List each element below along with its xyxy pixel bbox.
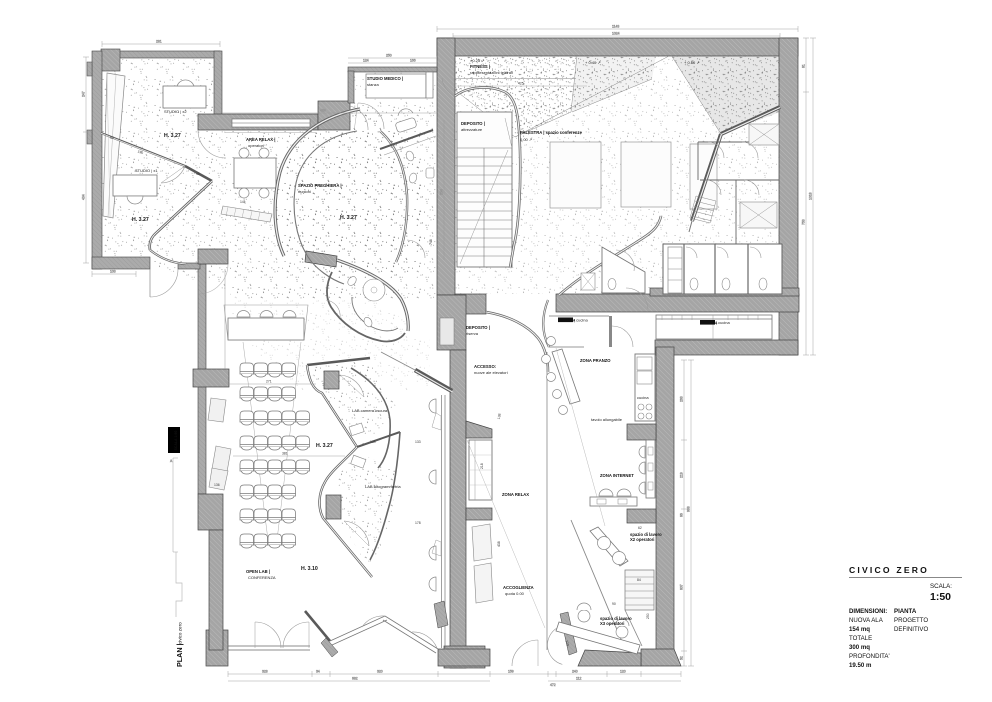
svg-text:stanza: stanza xyxy=(367,82,380,87)
svg-text:120: 120 xyxy=(620,670,626,674)
svg-text:81: 81 xyxy=(802,64,806,68)
svg-text:247: 247 xyxy=(82,91,86,97)
svg-text:FITNESS |: FITNESS | xyxy=(470,64,490,69)
svg-text:ZONA RELAX: ZONA RELAX xyxy=(502,492,529,497)
svg-text:133: 133 xyxy=(415,440,421,444)
svg-text:SPAZIO PREGHIERA |: SPAZIO PREGHIERA | xyxy=(298,183,342,188)
svg-text:DEFINITIVO: DEFINITIVO xyxy=(894,626,928,633)
svg-text:141: 141 xyxy=(240,200,246,204)
svg-text:quota 0.00: quota 0.00 xyxy=(505,591,525,596)
svg-text:OPEN LAB |: OPEN LAB | xyxy=(246,569,270,574)
svg-text:425: 425 xyxy=(518,82,524,86)
svg-text:472: 472 xyxy=(550,683,556,687)
svg-text:381: 381 xyxy=(282,452,288,456)
svg-text:159: 159 xyxy=(508,670,514,674)
svg-text:139: 139 xyxy=(370,440,376,444)
svg-text:attrezzature: attrezzature xyxy=(461,127,483,132)
svg-text:66: 66 xyxy=(680,513,684,517)
svg-text:52: 52 xyxy=(680,656,684,660)
svg-text:250: 250 xyxy=(386,54,392,58)
svg-text:263: 263 xyxy=(680,396,684,402)
svg-text:254: 254 xyxy=(440,189,444,195)
svg-text:1018: 1018 xyxy=(809,192,813,200)
svg-text:+0.25 ↗: +0.25 ↗ xyxy=(470,58,485,63)
svg-text:218: 218 xyxy=(480,463,484,469)
svg-text:438: 438 xyxy=(497,541,501,547)
svg-text:riserva: riserva xyxy=(466,331,479,336)
svg-text:SCALA 1:50: SCALA 1:50 xyxy=(174,431,178,451)
svg-text:tavolo allungabile: tavolo allungabile xyxy=(591,417,623,422)
svg-text:ACCOGLIENZA: ACCOGLIENZA xyxy=(503,585,534,590)
svg-text:ZONA PRANZO: ZONA PRANZO xyxy=(580,358,611,363)
svg-text:operatori: operatori xyxy=(248,143,264,148)
svg-text:PALESTRA | spazio conferenze: PALESTRA | spazio conferenze xyxy=(520,130,583,135)
svg-text:PROFONDITA': PROFONDITA' xyxy=(849,653,890,660)
svg-text:SCALA:: SCALA: xyxy=(930,583,952,590)
svg-text:nuove ale elevatori: nuove ale elevatori xyxy=(474,370,508,375)
svg-text:ACCESSO:: ACCESSO: xyxy=(474,364,496,369)
svg-text:| cucina: | cucina xyxy=(574,317,588,322)
svg-text:LAB.camera oscura: LAB.camera oscura xyxy=(352,408,388,413)
svg-text:H. 3.10: H. 3.10 xyxy=(301,566,318,572)
svg-text:34: 34 xyxy=(316,670,320,674)
svg-text:320: 320 xyxy=(377,670,383,674)
svg-text:| cucina: | cucina xyxy=(716,320,730,325)
svg-text:45: 45 xyxy=(196,172,200,176)
svg-text:240: 240 xyxy=(572,670,578,674)
svg-text:90: 90 xyxy=(612,602,616,606)
svg-text:H. 3.27: H. 3.27 xyxy=(316,443,333,449)
svg-text:753: 753 xyxy=(802,219,806,225)
svg-text:H. 3.27: H. 3.27 xyxy=(132,217,149,223)
svg-text:X2 operatori: X2 operatori xyxy=(630,537,654,542)
svg-text:682: 682 xyxy=(352,677,358,681)
svg-text:136: 136 xyxy=(214,483,220,487)
svg-text:124: 124 xyxy=(363,59,369,63)
svg-text:+ 0.60 ↗: + 0.60 ↗ xyxy=(684,60,700,65)
svg-text:424: 424 xyxy=(320,109,326,113)
svg-text:154 mq: 154 mq xyxy=(849,626,870,633)
svg-text:166: 166 xyxy=(410,59,416,63)
svg-text:rappresentazioni teatrali: rappresentazioni teatrali xyxy=(470,70,513,75)
svg-text:607: 607 xyxy=(680,584,684,590)
svg-text:281: 281 xyxy=(156,40,162,44)
svg-text:TOTALE: TOTALE xyxy=(849,635,872,642)
svg-text:civico zero: civico zero xyxy=(178,622,183,644)
svg-text:1:50: 1:50 xyxy=(930,591,951,603)
svg-text:CONFERENZA: CONFERENZA xyxy=(248,575,276,580)
svg-text:748: 748 xyxy=(429,239,433,245)
svg-text:NUOVA ALA: NUOVA ALA xyxy=(849,617,884,624)
svg-text:1024: 1024 xyxy=(612,32,620,36)
svg-text:+ 0.40 ↗: + 0.40 ↗ xyxy=(585,60,601,65)
svg-text:DEPOSITO |: DEPOSITO | xyxy=(461,121,485,126)
svg-text:62: 62 xyxy=(638,526,642,530)
svg-text:DIMENSIONI:: DIMENSIONI: xyxy=(849,608,887,615)
svg-text:178: 178 xyxy=(415,521,421,525)
svg-text:H. 3.27: H. 3.27 xyxy=(340,215,357,221)
svg-text:riunioni: riunioni xyxy=(298,189,311,194)
svg-text:H. 3.27: H. 3.27 xyxy=(164,133,181,139)
svg-text:PLAN |: PLAN | xyxy=(175,643,184,667)
svg-text:434: 434 xyxy=(82,194,86,200)
svg-text:ZONA INTERNET: ZONA INTERNET xyxy=(600,473,634,478)
svg-text:STUDIO | x2: STUDIO | x2 xyxy=(164,109,187,114)
svg-text:988: 988 xyxy=(687,506,691,512)
svg-text:DEPOSITO |: DEPOSITO | xyxy=(466,325,490,330)
svg-text:STUDIO MEDICO |: STUDIO MEDICO | xyxy=(367,76,403,81)
svg-text:PIANTA: PIANTA xyxy=(894,608,917,615)
svg-text:250: 250 xyxy=(646,613,650,619)
svg-text:LAB.fotogrammetria: LAB.fotogrammetria xyxy=(365,484,401,489)
svg-text:112: 112 xyxy=(576,677,582,681)
svg-text:19.50 m: 19.50 m xyxy=(849,662,872,669)
svg-text:300 mq: 300 mq xyxy=(849,644,870,651)
svg-text:AREA RELAX |: AREA RELAX | xyxy=(246,137,275,142)
svg-text:84: 84 xyxy=(637,578,641,582)
svg-text:cucina: cucina xyxy=(637,395,649,400)
svg-text:328: 328 xyxy=(262,670,268,674)
svg-text:271: 271 xyxy=(266,380,272,384)
svg-text:103: 103 xyxy=(110,270,116,274)
svg-text:1143: 1143 xyxy=(612,25,619,29)
svg-text:0.00 ↗: 0.00 ↗ xyxy=(520,137,532,142)
svg-text:CIVICO ZERO: CIVICO ZERO xyxy=(849,565,929,575)
svg-text:PROGETTO: PROGETTO xyxy=(894,617,928,624)
svg-text:90: 90 xyxy=(110,136,114,140)
svg-text:219: 219 xyxy=(680,472,684,478)
svg-text:STUDIO | x1: STUDIO | x1 xyxy=(135,168,158,173)
svg-text:X3 operatori: X3 operatori xyxy=(600,621,624,626)
